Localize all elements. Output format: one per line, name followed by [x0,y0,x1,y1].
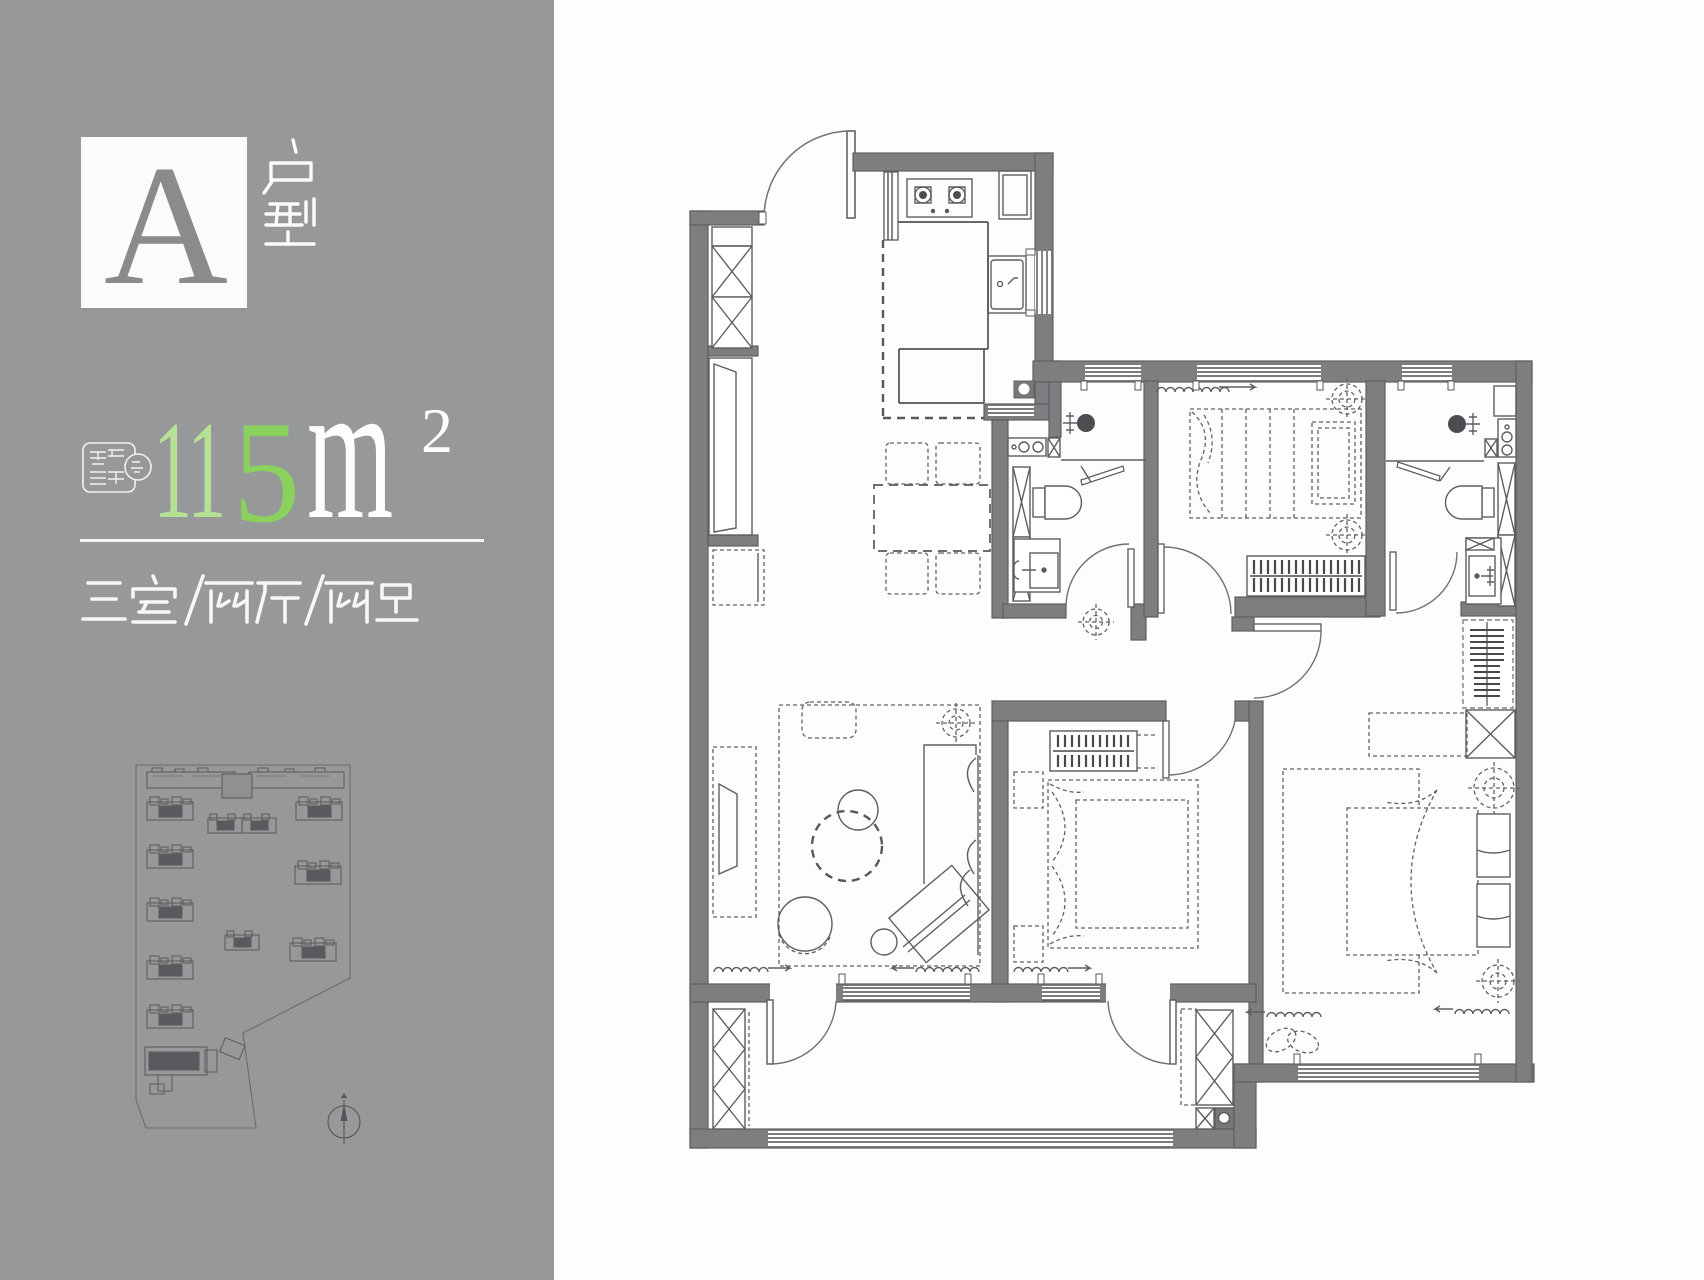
svg-text:A: A [104,131,228,321]
svg-text:m: m [307,341,393,561]
svg-text:11: 11 [153,392,224,547]
svg-text:2: 2 [421,395,453,466]
svg-text:5: 5 [233,392,300,553]
